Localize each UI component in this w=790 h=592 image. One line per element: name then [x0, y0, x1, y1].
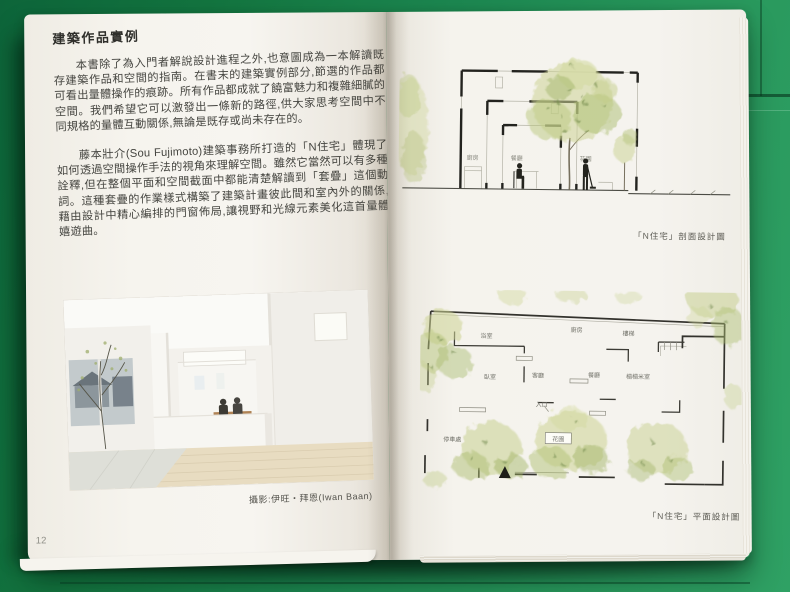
plan-trees	[418, 289, 743, 491]
page-number: 12	[36, 535, 47, 546]
open-book: 建築作品實例 本書除了為入門者解說設計進程之外,也意圖成為一本解讀既存建築作品和…	[24, 9, 750, 562]
label-kitchen: 廚房	[467, 154, 479, 162]
plan-caption: 「N住宅」平面設計圖	[418, 507, 742, 523]
label-tatami: 榻榻米室	[626, 373, 650, 381]
paragraph-intro: 本書除了為入門者解說設計進程之外,也意圖成為一本解讀既存建築作品和空間的指南。在…	[53, 48, 386, 136]
tree-trunk	[569, 138, 571, 190]
label-bedroom: 臥室	[484, 373, 496, 381]
label-kitchen: 廚房	[571, 326, 583, 334]
mat-grid-line	[60, 582, 750, 584]
plan-drawing: 浴室 廚房 樓梯 臥室 客廳 餐廳 榻榻米室 入口 停車處 花園	[418, 289, 743, 505]
interior-photo	[64, 290, 374, 490]
paragraph-fujimoto: 藤本壯介(Sou Fujimoto)建築事務所打造的「N住宅」體現了如何透過空間…	[56, 138, 390, 241]
mat-grid-line	[760, 0, 762, 96]
mat-grid-line	[742, 94, 790, 97]
sitting-figure	[514, 163, 525, 189]
section-drawing: 廚房 餐廳 花園	[398, 38, 736, 226]
label-dining: 餐廳	[588, 371, 600, 379]
label-stairs: 樓梯	[623, 330, 635, 338]
standing-figure	[583, 158, 596, 190]
label-dining: 餐廳	[511, 154, 523, 162]
label-bath: 浴室	[480, 332, 492, 340]
section-caption: 「N住宅」剖面設計圖	[396, 227, 728, 243]
section-title: 建築作品實例	[52, 17, 386, 48]
label-parking: 停車處	[443, 435, 461, 443]
label-garden: 花園	[552, 435, 564, 443]
foliage-left	[398, 74, 429, 184]
label-entrance: 入口	[536, 401, 548, 408]
photo-credit: 攝影:伊旺・拜恩(Iwan Baan)	[68, 489, 372, 513]
right-page: 廚房 餐廳 花園	[386, 9, 750, 559]
left-page: 建築作品實例 本書除了為入門者解說設計進程之外,也意圖成為一本解讀既存建築作品和…	[24, 12, 390, 563]
label-living: 客廳	[532, 371, 544, 379]
mat-grid-line	[742, 110, 790, 111]
photo-of-open-book: 建築作品實例 本書除了為入門者解說設計進程之外,也意圖成為一本解讀既存建築作品和…	[0, 0, 790, 592]
